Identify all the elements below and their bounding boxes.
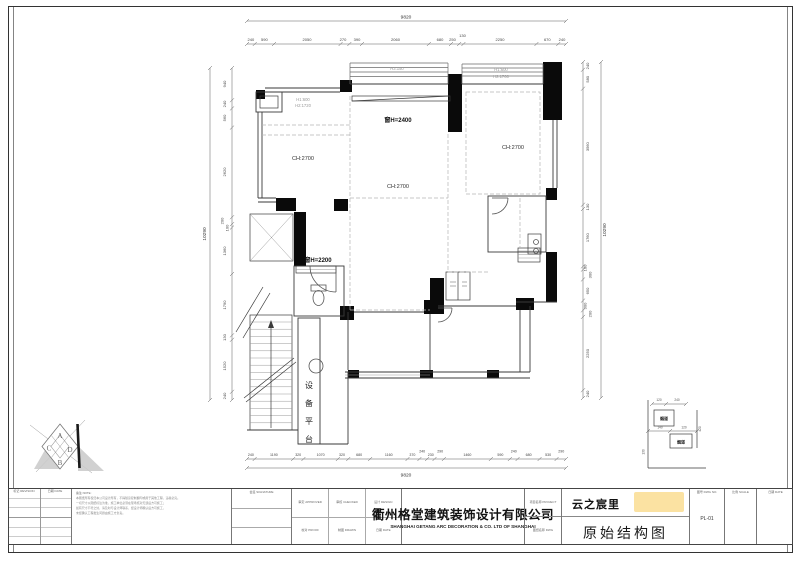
dim-value: 3560 [585,141,590,151]
dim-value: 1520 [222,361,227,371]
dim-value: 940 [222,80,227,87]
dim-value: 240 [511,450,517,454]
flue-label: 烟道 [677,439,685,445]
dim-value: 120 [656,398,662,402]
dim-value: 1790 [222,300,227,310]
dim-value: 1760 [585,232,590,242]
company-cell: 衢州格堂建筑装饰设计有限公司 SHANGHAI GETANG ARC DECOR… [401,489,524,544]
scale-cell: 比例 SCALE [724,489,756,544]
dim-value: 370 [409,453,415,457]
checked-label: 审核 CHECKED [328,489,364,517]
dim-value: 200 [588,310,593,317]
dim-value: 120 [681,426,687,430]
logo-letter-c: C [47,445,52,453]
structural-walls [256,62,562,378]
dim-value: 240 [674,398,680,402]
dim-value: 1360 [222,246,227,256]
dim-value: 590 [261,37,268,42]
dim-value: 320 [295,453,301,457]
project-field-label: 项目名称 PROJECT [525,489,561,517]
signature-label: 会签 SIGNATURE [232,491,291,495]
window-height-note: H1:600 [494,67,508,72]
window-label: 窗H=2200 [304,256,332,264]
scale-label: 比例 SCALE [725,491,756,495]
dim-value: 240 [419,450,425,454]
dim-value: 200 [220,217,225,224]
dim-value: 300 [588,271,593,278]
dim-value: 290 [437,450,443,454]
note-line: 未经确认工程发生问题由施工方负责。 [76,511,227,516]
dim-total-bottom: 9820 [401,473,412,479]
dim-value: 670 [544,37,551,42]
dim-total-right: 10290 [602,223,608,237]
title-block: 标记 REVISION 日期 DATE 备注 NOTE: 本图纸所有权归本公司设… [8,488,793,545]
floor-plan-sheet: 9820 240 590 2050 270 390 2060 680 250 1… [0,0,800,559]
dim-value: 590 [497,453,503,457]
window-height-note: H2:1760 [493,74,510,79]
field-values-column: 云之宸里 原始结构图 [561,489,689,544]
dim-value: 1160 [385,453,393,457]
window-height-note: H3:150 [390,66,404,71]
company-name-en: SHANGHAI GETANG ARC DECORATION & CO. LTD… [390,524,535,529]
dims-bottom: 240 1190 320 1070 320 680 1160 370 240 2… [245,450,568,479]
logo-letter-a: A [57,432,62,440]
dim-value: 2250 [585,348,590,358]
drawn-label: 制图 DRAWN [328,517,364,545]
ceiling-height-label: CH:2700 [387,184,409,190]
dim-value: 1070 [317,453,325,457]
dwg-field-label: 图纸名称 DWG [525,517,561,545]
flue-label: 烟道 [660,415,668,421]
dim-value: 240 [248,453,254,457]
redaction-highlight [634,492,684,512]
dim-value: 580 [585,75,590,82]
dim-value: 1190 [270,453,278,457]
ceiling-height-label: CH:2700 [502,145,524,151]
dim-value: 130 [642,449,646,455]
dim-value: 1460 [463,453,471,457]
revision-date-header: 日期 DATE [40,490,70,494]
plan-labels: H1:600 H2:1720 H3:150 H1:600 H2:1760 窗H=… [292,66,524,444]
dim-value: 2060 [391,37,401,42]
drawing-title: 原始结构图 [562,523,689,543]
proofed-label: 校对 PROOF [292,517,328,545]
drawing-no-label: 图号 DWG NO. [690,491,724,495]
equipment-platform-label: 备 [305,398,313,408]
dim-value: 270 [340,37,347,42]
revision-table: 标记 REVISION 日期 DATE [9,489,71,544]
sheet-border [9,7,793,553]
dim-value: 680 [526,453,532,457]
dim-value: 320 [339,453,345,457]
logo-letter-d: D [67,446,72,454]
dim-value: 100 [583,264,588,271]
window-height-note: H1:600 [296,97,310,102]
dim-value: 2250 [496,37,506,42]
window-label: 窗H=2400 [384,116,412,124]
dim-value: 300 [583,302,588,309]
field-labels-column: 项目名称 PROJECT 图纸名称 DWG [524,489,561,544]
thin-walls [247,88,557,444]
equipment-platform-label: 台 [305,434,313,444]
dim-value: 2050 [303,37,313,42]
dim-value: 650 [585,287,590,294]
dim-value: 240 [559,37,566,42]
dims-top: 9820 240 590 2050 270 390 2060 680 250 1… [245,15,568,47]
dim-value: 130 [222,333,227,340]
dim-value: 560 [222,114,227,121]
dim-total-top: 9820 [401,15,412,21]
logo-letter-b: B [58,459,63,467]
fixtures [309,198,539,373]
drawing-no-value: PL-01 [690,516,724,522]
dim-total-left: 10290 [202,227,208,241]
dim-value: 240 [585,390,590,397]
dim-value: 290 [558,450,564,454]
revision-header: 标记 REVISION [9,490,39,494]
dashed-lines [262,92,540,310]
drawing-no-cell: 图号 DWG NO. PL-01 [689,489,724,544]
dim-value: 530 [545,453,551,457]
window-height-note: H2:1720 [295,103,312,108]
key-detail: 120 240 420 烟道 烟道 140 120 130 [642,398,707,468]
dim-value: 130 [459,33,466,38]
dim-value: 680 [437,37,444,42]
dims-left: 940 240 560 2620 200 100 1360 1790 130 1… [202,66,234,402]
window-bands [350,63,543,84]
date-cell: 日期 DATE [756,489,794,544]
dim-value: 240 [585,62,590,69]
stairs [236,287,296,430]
project-name: 云之宸里 [572,496,620,512]
company-logo: A C D B [30,420,104,473]
dim-value: 140 [657,426,663,430]
ceiling-height-label: CH:2700 [292,156,314,162]
equipment-platform-label: 设 [305,380,313,390]
dim-value: 100 [225,224,230,231]
dim-value: 390 [354,37,361,42]
notes-cell: 备注 NOTE: 本图纸所有权归本公司设计所有，不得随意复制翻印或用于其他工程，… [71,489,231,544]
dim-value: 240 [248,37,255,42]
dim-value: 250 [449,37,456,42]
dim-value: 130 [585,203,590,210]
signature-cell: 会签 SIGNATURE [231,489,291,544]
dim-value: 240 [222,100,227,107]
equipment-platform-label: 平 [305,417,313,426]
dim-value: 240 [222,392,227,399]
approved-label: 审定 APPROVED [292,489,328,517]
dim-value: 420 [698,426,702,432]
dim-value: 680 [356,453,362,457]
dim-value: 230 [428,453,434,457]
dim-value: 2620 [222,167,227,177]
dims-right: 240 580 3560 130 1760 100 300 650 300 20… [581,60,608,400]
date-label: 日期 DATE [757,491,794,495]
